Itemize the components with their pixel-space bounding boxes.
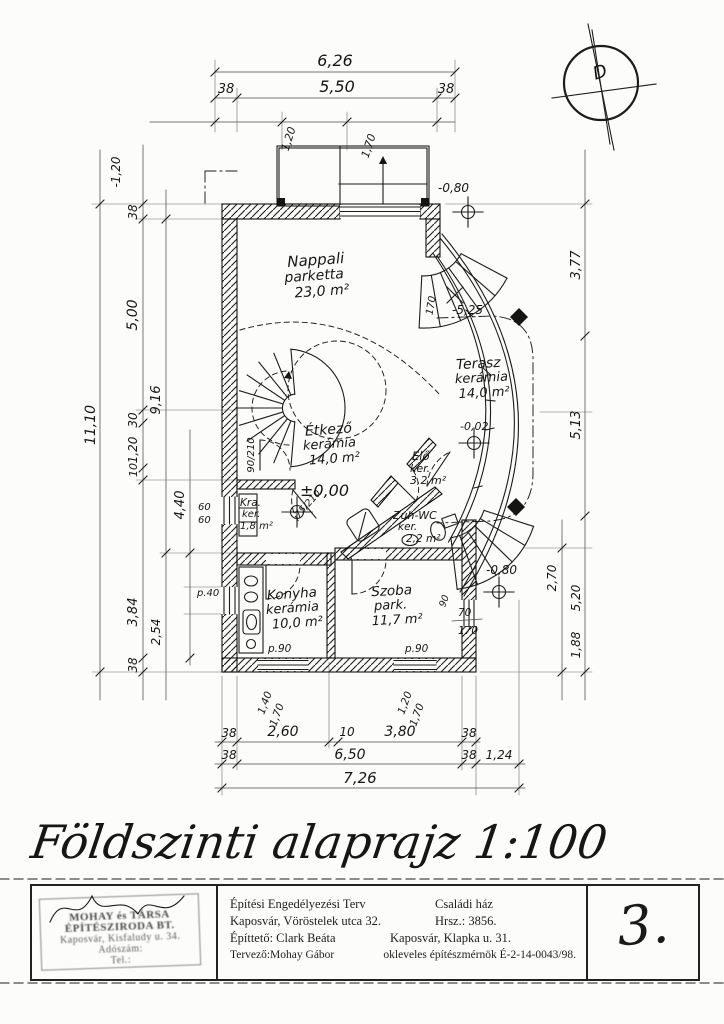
- room-area: 14,0 m²: [458, 384, 510, 402]
- dim-right-0: 3,77: [569, 250, 584, 280]
- dim-left-c6: 38: [126, 657, 140, 673]
- side-parapet: 90: [437, 594, 451, 609]
- level-slope: -5,25: [452, 303, 483, 317]
- side-window-w: 70: [458, 607, 472, 619]
- dim-left-i0: 9,16: [149, 386, 164, 415]
- title-block-text: Építési Engedélyezési Terv Családi ház K…: [218, 886, 586, 979]
- dim-left-c2: 30: [126, 412, 140, 428]
- dim-bottom-overall: 7,26: [343, 769, 376, 787]
- room-finish: ker.: [242, 509, 260, 520]
- dim-top-overall: 6,26: [317, 51, 353, 70]
- room-finish: ker.: [398, 521, 417, 533]
- dim-b2-2: 38: [461, 748, 477, 762]
- dim-left-c5: 3,84: [126, 598, 141, 627]
- top-dimension-chain: 6,26 38 5,50 38 1,20 1,70: [150, 51, 459, 160]
- dim-top-clear: 5,50: [319, 77, 355, 96]
- dim-right-1: 5,13: [569, 411, 584, 440]
- side-window-h: 170: [458, 625, 478, 637]
- level-marker: [453, 197, 483, 227]
- dim-left-c3: 1,20: [126, 436, 140, 463]
- room-elo: Elő ker. 3,2 m²: [410, 449, 447, 487]
- tb-row2-left: Kaposvár, Vöröstelek utca 32.: [230, 913, 435, 930]
- room-area: 23,0 m²: [294, 282, 350, 302]
- stair-direction-arrow: [379, 156, 387, 164]
- dim-right-2: 2,70: [545, 564, 559, 591]
- dim-left-i2: 2,54: [149, 619, 163, 646]
- dim-left-i1: 4,40: [173, 491, 188, 520]
- dim-b2-0: 38: [221, 748, 237, 762]
- level-garden-upper: -0,80: [438, 181, 469, 195]
- dim-b1-0: 38: [221, 726, 237, 740]
- dim-right-4: 1,88: [569, 631, 583, 658]
- drawing-sheet: D 6,26 38 5,50 38 1,20 1,70: [0, 0, 724, 1024]
- dim-left-overall: 11,10: [83, 405, 99, 445]
- room-area: 11,7 m²: [371, 612, 423, 630]
- room-etkezo: Étkező kerámia 14,0 m²: [301, 419, 360, 469]
- room-name: Elő: [412, 449, 430, 463]
- company-stamp: MOHAY és TÁRSA ÉPÍTÉSZIRODA BT. Kaposvár…: [32, 886, 218, 979]
- room-area: 3,2 m²: [410, 474, 447, 487]
- tb-row2-right: Hrsz.: 3856.: [435, 913, 496, 930]
- tb-row4-left: Tervező:Mohay Gábor: [230, 947, 383, 964]
- level-terrace: -0,02: [460, 420, 488, 433]
- room-area: 10,0 m²: [271, 614, 323, 633]
- dim-small-60b: 60: [198, 515, 211, 526]
- room-szoba: Szoba park. 11,7 m²: [370, 582, 423, 630]
- entry-stair-width: 170: [424, 295, 438, 316]
- room-nappali: Nappali parketta 23,0 m²: [282, 249, 351, 302]
- dim-left-c0: 38: [126, 204, 140, 220]
- tb-row3-left: Építtető: Clark Beáta: [230, 930, 390, 947]
- dim-left-c4: 10: [127, 463, 140, 477]
- dim-left-c1: 5,00: [125, 299, 141, 330]
- level-upper-left: -1,20: [109, 156, 123, 187]
- room-area: 1,8 m²: [240, 521, 273, 532]
- dim-b2-3: 1,24: [486, 748, 513, 762]
- room-kamra: Kra. ker. 1,8 m²: [240, 497, 273, 532]
- tb-row1-right: Családi ház: [435, 896, 493, 913]
- floorplan-canvas: D 6,26 38 5,50 38 1,20 1,70: [0, 0, 724, 1024]
- parapet-kitchen: p.90: [267, 643, 292, 655]
- sheet-number-cell: 3.: [586, 886, 698, 979]
- parapet-left: p.40: [196, 588, 219, 599]
- kitchen-sink: [243, 610, 260, 634]
- room-name: Kra.: [240, 497, 261, 509]
- terrace-curved-wall: [427, 234, 533, 596]
- dim-top-w1: 38: [218, 82, 235, 97]
- column: [510, 308, 528, 326]
- dim-b1-3: 3,80: [384, 724, 415, 740]
- north-arrow-icon: D: [552, 24, 656, 150]
- room-zuhwc: Zuh-WC ker. 2,2 m²: [392, 509, 441, 545]
- room-area: 14,0 m²: [309, 450, 361, 469]
- tb-row4-right: okleveles építészmérnök É-2-14-0043/98.: [383, 947, 576, 964]
- dim-b2-1: 6,50: [334, 747, 365, 763]
- dim-b1-2: 10: [339, 725, 355, 739]
- room-finish: park.: [373, 597, 408, 614]
- column: [507, 498, 525, 516]
- title-text: Földszinti alaprajz 1:100: [27, 815, 611, 869]
- stair-door-size: 90/210: [246, 437, 257, 472]
- dim-b1-4: 38: [461, 726, 477, 740]
- room-area: 2,2 m²: [406, 533, 441, 545]
- dim-right-3: 5,20: [569, 584, 583, 611]
- balcony-deck: [205, 146, 429, 206]
- room-konyha: Konyha kerámia 10,0 m²: [264, 584, 323, 633]
- level-garden-lower: -0,80: [486, 563, 517, 577]
- dim-small-60a: 60: [198, 502, 211, 513]
- dim-top-w2: 38: [438, 82, 455, 97]
- title-block: MOHAY és TÁRSA ÉPÍTÉSZIRODA BT. Kaposvár…: [30, 884, 700, 981]
- tb-row1-left: Építési Engedélyezési Terv: [230, 896, 435, 913]
- tb-row3-right: Kaposvár, Klapka u. 31.: [390, 930, 511, 947]
- left-dimension-chain: 11,10 -1,20 38 5,00 30 1,20 10 3,84 38 9…: [83, 145, 236, 700]
- parapet-room: p.90: [404, 643, 429, 655]
- north-letter: D: [590, 60, 610, 84]
- signature-icon: [44, 886, 204, 930]
- level-marker: [484, 577, 514, 607]
- room-terasz: Terasz kerámia 14,0 m²: [454, 355, 510, 403]
- sheet-number: 3.: [615, 892, 671, 958]
